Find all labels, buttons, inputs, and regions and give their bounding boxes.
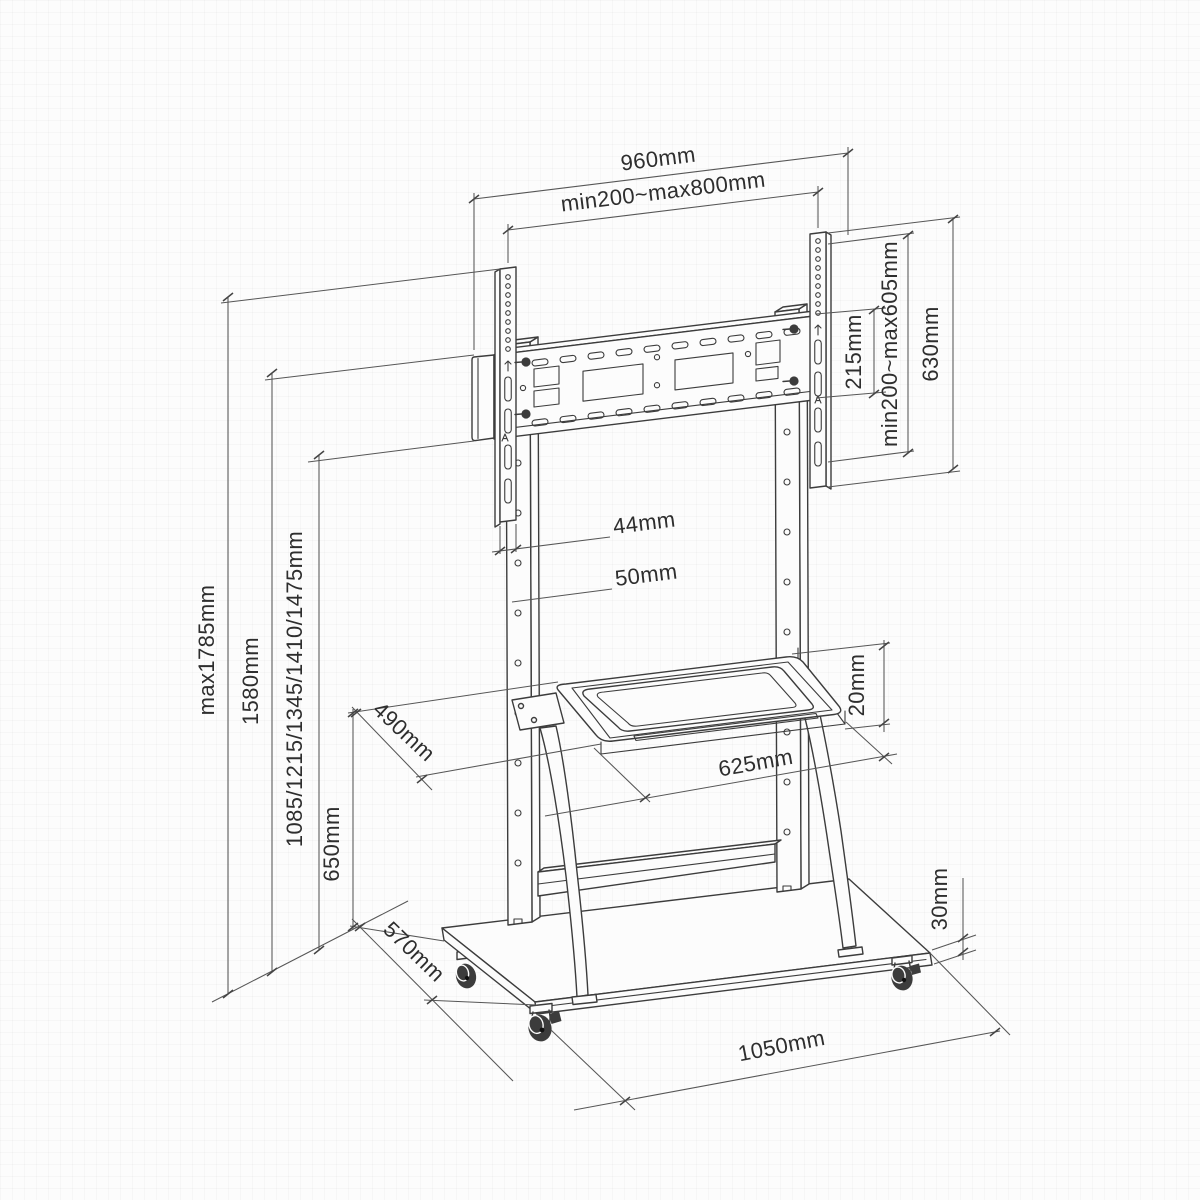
dim-shelf-thickness-label: 20mm	[844, 654, 869, 717]
dim-max-height-label: max1785mm	[194, 585, 219, 716]
dim-top-width-label: 960mm	[619, 142, 697, 176]
dim-vesa-height-label: min200~max605mm	[877, 241, 902, 447]
dim-shelf-height-label: 650mm	[319, 806, 344, 881]
dim-shelf-depth-label: 490mm	[368, 697, 440, 767]
dim-column-height-label: 1580mm	[238, 637, 263, 725]
dim-vesa-width-label: min200~max800mm	[559, 167, 766, 217]
dim-base-width-label: 1050mm	[736, 1025, 827, 1066]
dim-base-depth-label: 570mm	[378, 916, 450, 986]
mount-bar	[472, 310, 822, 441]
dim-rail-width-label: 44mm	[612, 507, 677, 539]
dim-hole-pitch-label: 50mm	[614, 559, 679, 591]
right-vesa-rail	[810, 232, 831, 489]
shelf-arm-left	[512, 693, 564, 730]
left-vesa-rail	[495, 267, 516, 527]
diagram-canvas: 960mm min200~max800mm 215mm min200~max60…	[0, 0, 1200, 1200]
dim-base-thickness-label: 30mm	[927, 868, 952, 931]
tv-stand-diagram: 960mm min200~max800mm 215mm min200~max60…	[0, 0, 1200, 1200]
dim-rail-height-label: 630mm	[918, 306, 943, 381]
dim-bracket-height-label: 215mm	[841, 314, 866, 389]
dim-screen-center-heights-label: 1085/1215/1345/1410/1475mm	[282, 531, 307, 847]
